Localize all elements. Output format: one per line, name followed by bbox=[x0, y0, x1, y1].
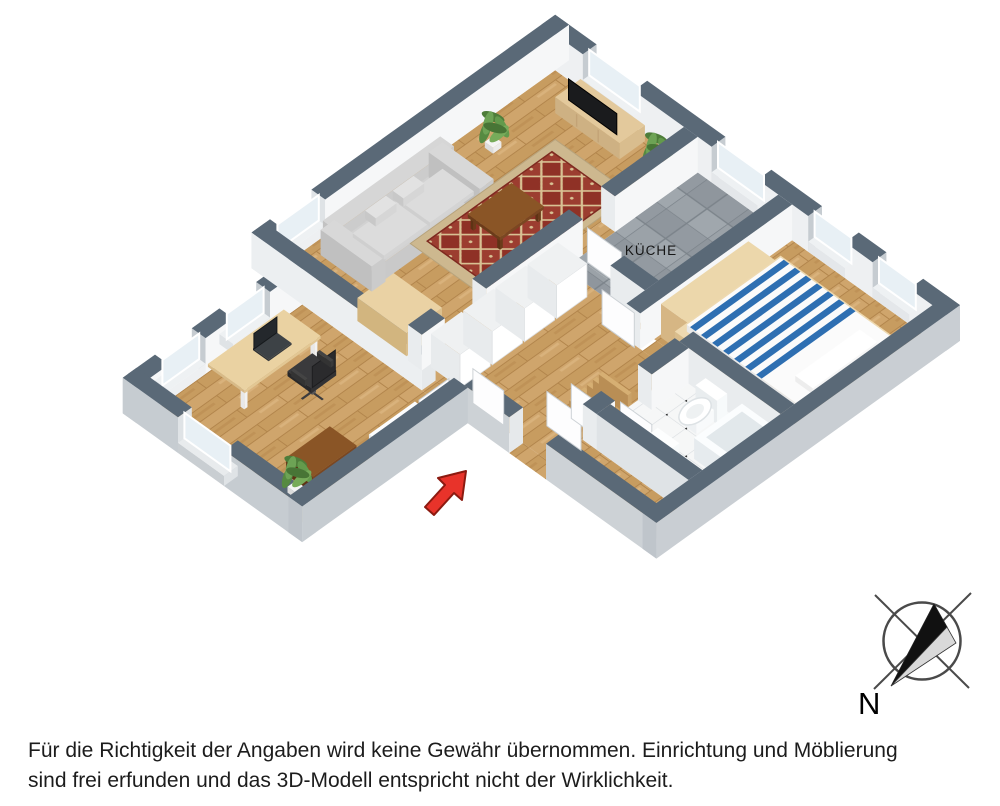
disclaimer-line-1: Für die Richtigkeit der Angaben wird kei… bbox=[28, 736, 988, 766]
compass-north-label: N bbox=[858, 686, 880, 721]
entrance-arrow bbox=[425, 471, 466, 515]
compass-icon: N bbox=[845, 580, 995, 730]
room-label-kitchen: KÜCHE bbox=[596, 243, 706, 258]
disclaimer-line-2: sind frei erfunden und das 3D-Modell ent… bbox=[28, 766, 988, 796]
disclaimer: Für die Richtigkeit der Angaben wird kei… bbox=[28, 736, 988, 796]
floorplan-page: KÜCHE N Für die Richtigkeit der Angaben … bbox=[0, 0, 1000, 806]
